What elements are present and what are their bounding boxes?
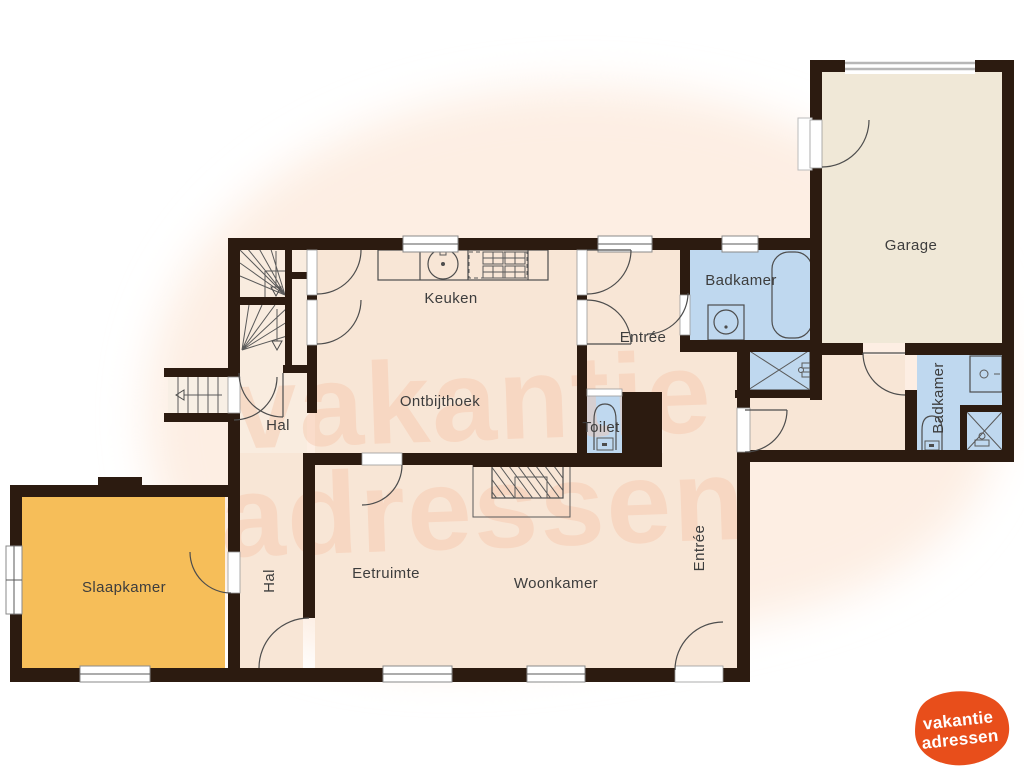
- window-keuken: [403, 236, 458, 252]
- room-label-slaapkamer: Slaapkamer: [82, 579, 166, 596]
- room-label-keuken: Keuken: [424, 290, 477, 307]
- room-label-hal-beneden: Hal: [261, 569, 278, 593]
- room-label-ontbijthoek: Ontbijthoek: [400, 393, 480, 410]
- room-label-toilet: Toilet: [582, 419, 620, 436]
- garage-door: [845, 58, 975, 74]
- window-woonkamer: [527, 666, 585, 682]
- window-slaapkamer-zuid: [80, 666, 150, 682]
- room-label-eetruimte: Eetruimte: [352, 565, 420, 582]
- window-badkamer: [722, 236, 758, 252]
- room-garage: [822, 72, 1002, 343]
- room-label-badkamer-boven: Badkamer: [705, 272, 777, 289]
- room-label-entree-boven: Entrée: [620, 329, 667, 346]
- window-slaapkamer-west: [6, 546, 22, 614]
- floor-plan-page: vakantie adressen: [0, 0, 1024, 768]
- window-eetruimte: [383, 666, 452, 682]
- brand-logo: vakantie adressen: [911, 686, 1013, 768]
- room-label-woonkamer: Woonkamer: [514, 575, 598, 592]
- room-label-hal-boven: Hal: [266, 417, 290, 434]
- floor-plan: vakantie adressen: [0, 0, 1024, 768]
- room-label-garage: Garage: [885, 237, 937, 254]
- room-label-entree-gang: Entrée: [691, 525, 708, 572]
- room-label-badkamer-rechts: Badkamer: [930, 362, 947, 434]
